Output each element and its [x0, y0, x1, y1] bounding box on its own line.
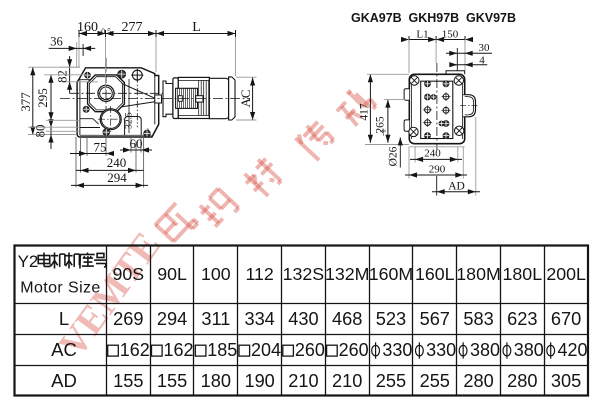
svg-text:Motor Size: Motor Size: [20, 280, 100, 297]
svg-text:100: 100: [201, 264, 231, 284]
svg-text:160: 160: [77, 20, 98, 35]
svg-text:GKA97B: GKA97B: [351, 11, 402, 25]
svg-text:80: 80: [33, 125, 48, 138]
svg-text:417: 417: [359, 103, 371, 121]
svg-text:280: 280: [463, 371, 493, 391]
svg-text:-0.5: -0.5: [99, 27, 112, 36]
svg-text:180L: 180L: [503, 264, 543, 284]
svg-text:330: 330: [426, 340, 456, 360]
svg-text:430: 430: [288, 309, 318, 329]
svg-text:311: 311: [201, 309, 230, 329]
svg-text:AC: AC: [238, 89, 253, 107]
svg-text:30: 30: [479, 42, 491, 54]
svg-text:L: L: [192, 20, 201, 35]
svg-text:132M: 132M: [325, 264, 369, 284]
svg-text:36: 36: [50, 35, 63, 49]
svg-text:567: 567: [420, 309, 450, 329]
svg-text:305: 305: [551, 371, 581, 391]
svg-text:190: 190: [244, 371, 274, 391]
svg-text:380: 380: [470, 340, 500, 360]
svg-text:277: 277: [122, 20, 143, 35]
svg-text:200L: 200L: [546, 264, 586, 284]
svg-text:AD: AD: [448, 181, 465, 193]
svg-text:380: 380: [514, 340, 544, 360]
svg-text:269: 269: [113, 309, 143, 329]
svg-text:AD: AD: [51, 370, 77, 391]
svg-text:4: 4: [479, 55, 485, 67]
svg-text:180: 180: [201, 371, 231, 391]
svg-text:82: 82: [56, 70, 70, 83]
svg-text:AC: AC: [51, 339, 77, 360]
svg-text:290: 290: [429, 164, 446, 176]
svg-text:420: 420: [558, 340, 588, 360]
svg-text:623: 623: [507, 309, 537, 329]
svg-text:L1: L1: [416, 29, 428, 41]
svg-text:583: 583: [463, 309, 493, 329]
svg-text:280: 280: [507, 371, 537, 391]
svg-text:155: 155: [157, 371, 187, 391]
svg-text:260: 260: [339, 340, 369, 360]
svg-text:162: 162: [163, 340, 193, 360]
svg-text:132S: 132S: [283, 264, 325, 284]
svg-text:377: 377: [18, 92, 33, 112]
svg-text:GKV97B: GKV97B: [466, 11, 516, 25]
svg-text:210: 210: [332, 371, 362, 391]
svg-text:160L: 160L: [415, 264, 455, 284]
svg-text:468: 468: [332, 309, 362, 329]
svg-text:204: 204: [251, 340, 281, 360]
svg-text:260: 260: [295, 340, 325, 360]
svg-text:Y2: Y2: [18, 252, 39, 271]
svg-text:60: 60: [130, 136, 143, 151]
svg-text:255: 255: [376, 371, 406, 391]
svg-text:Ø26: Ø26: [388, 146, 400, 166]
svg-text:-1: -1: [379, 129, 388, 136]
svg-text:210: 210: [288, 371, 318, 391]
svg-text:180M: 180M: [456, 264, 500, 284]
svg-text:295: 295: [35, 88, 50, 108]
svg-text:162: 162: [120, 340, 150, 360]
svg-text:334: 334: [244, 309, 274, 329]
svg-text:670: 670: [551, 309, 581, 329]
svg-text:523: 523: [376, 309, 406, 329]
svg-text:240: 240: [107, 155, 127, 170]
svg-text:112: 112: [245, 264, 273, 284]
svg-text:160M: 160M: [369, 264, 413, 284]
svg-text:75: 75: [94, 139, 107, 154]
svg-text:255: 255: [420, 371, 450, 391]
svg-text:294: 294: [157, 309, 187, 329]
svg-text:90S: 90S: [112, 264, 144, 284]
svg-text:240: 240: [424, 148, 441, 160]
svg-text:32.5: 32.5: [125, 112, 135, 129]
svg-text:294: 294: [107, 170, 127, 185]
svg-text:150: 150: [442, 29, 459, 41]
svg-text:155: 155: [113, 371, 143, 391]
svg-text:330: 330: [382, 340, 412, 360]
svg-text:L: L: [59, 308, 69, 329]
svg-text:GKH97B: GKH97B: [409, 11, 460, 25]
svg-text:185: 185: [207, 340, 237, 360]
svg-text:90L: 90L: [157, 264, 187, 284]
